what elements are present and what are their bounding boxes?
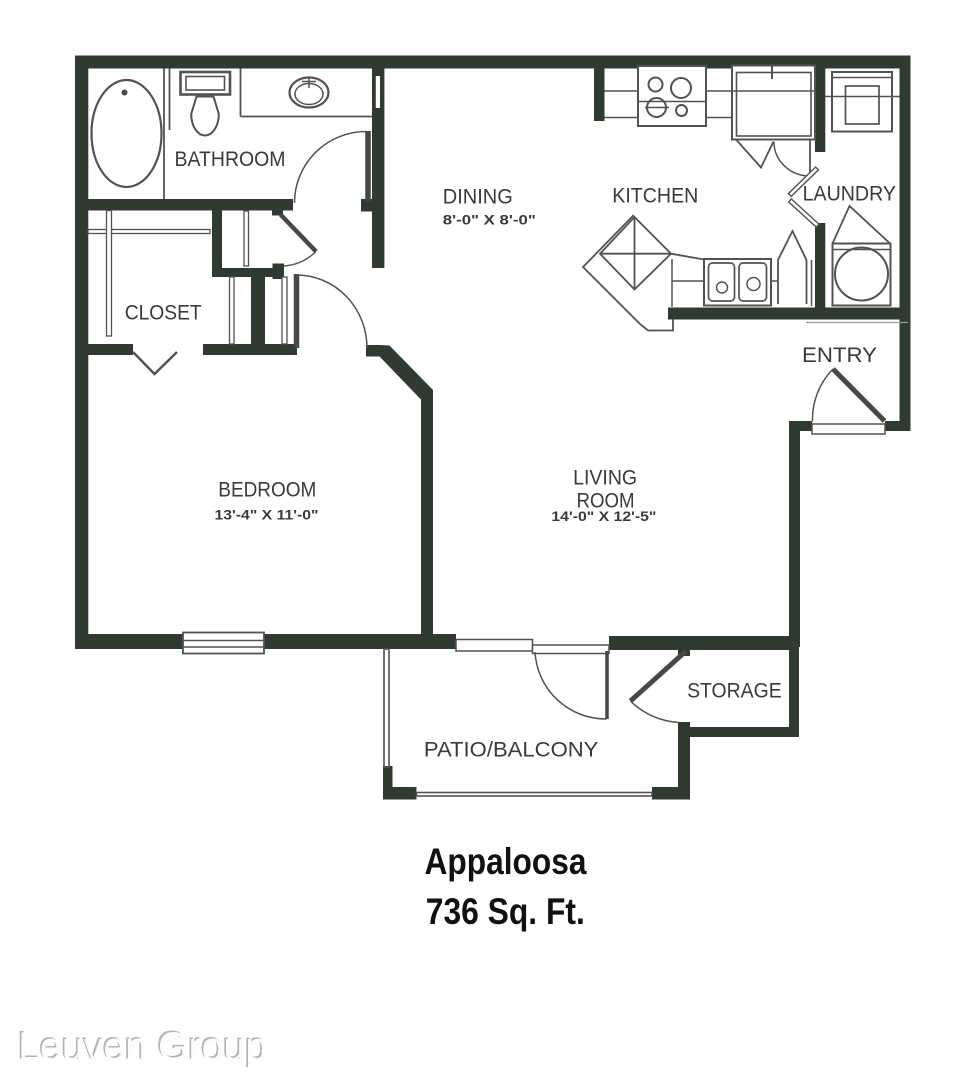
svg-text:LIVING: LIVING xyxy=(573,467,637,490)
svg-text:13'-4" X 11'-0": 13'-4" X 11'-0" xyxy=(215,508,319,523)
svg-text:736 Sq. Ft.: 736 Sq. Ft. xyxy=(426,891,585,932)
svg-text:ENTRY: ENTRY xyxy=(802,344,877,367)
svg-text:CLOSET: CLOSET xyxy=(125,301,202,324)
svg-text:STORAGE: STORAGE xyxy=(687,680,782,703)
svg-text:PATIO/BALCONY: PATIO/BALCONY xyxy=(424,739,599,762)
svg-text:14'-0" X 12'-5": 14'-0" X 12'-5" xyxy=(551,509,656,524)
svg-text:LAUNDRY: LAUNDRY xyxy=(803,183,896,206)
svg-text:8'-0" X 8'-0": 8'-0" X 8'-0" xyxy=(443,213,536,228)
svg-text:BATHROOM: BATHROOM xyxy=(175,148,286,171)
svg-text:KITCHEN: KITCHEN xyxy=(612,184,698,207)
svg-text:DINING: DINING xyxy=(443,186,513,209)
svg-text:Leuven Group: Leuven Group xyxy=(18,1025,267,1069)
svg-text:BEDROOM: BEDROOM xyxy=(218,478,316,501)
svg-text:Appaloosa: Appaloosa xyxy=(425,841,587,882)
